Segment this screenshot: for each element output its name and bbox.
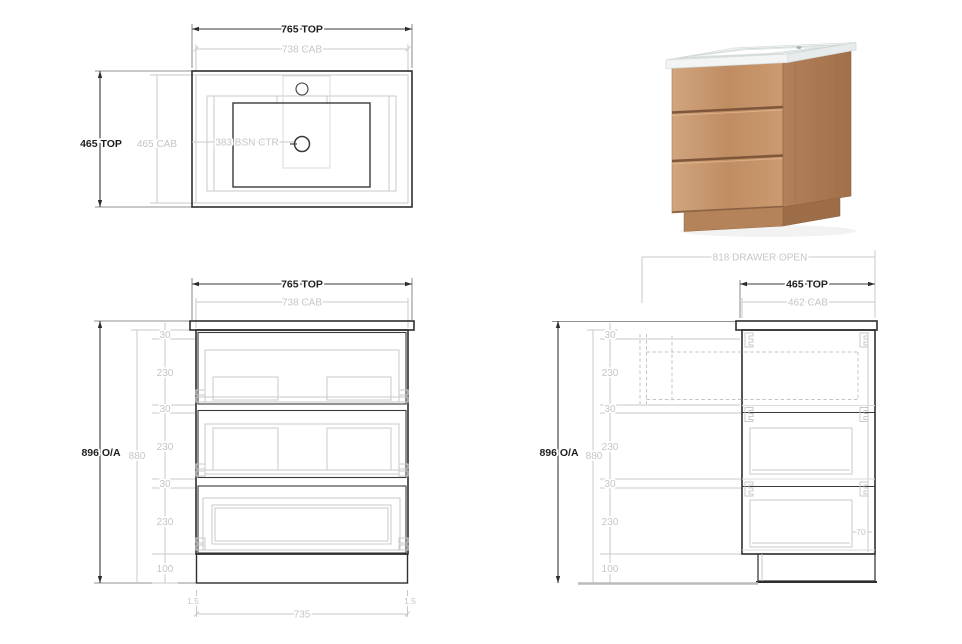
side-cabinet <box>742 330 875 554</box>
render-tap-hole <box>796 46 801 49</box>
side-view: 818 DRAWER OPEN 465 TOP 462 CAB 896 O/A … <box>528 243 892 603</box>
side-height-dims: 896 O/A 880 <box>539 321 736 583</box>
side-seg-0: 30 <box>604 330 616 341</box>
side-cab-height-label: 880 <box>586 451 603 462</box>
kick-width-label: 735 <box>294 610 311 621</box>
side-dim-chain: 30 230 30 230 30 230 100 <box>600 323 758 583</box>
front-seg-5: 230 <box>157 517 174 528</box>
front-dim-chain: 30 230 30 230 30 230 100 <box>152 323 196 583</box>
front-cab-height-label: 880 <box>129 451 146 462</box>
drawer-open-label: 818 DRAWER OPEN <box>713 253 808 264</box>
plan-width-dim-top: 765 TOP <box>192 24 412 36</box>
render-cabinet-side <box>783 45 851 207</box>
side-depth-cab-label: 462 CAB <box>788 298 828 309</box>
front-kick-dims: 1.5 1.5 735 <box>187 590 416 621</box>
side-seg-5: 230 <box>602 517 619 528</box>
front-seg-2: 30 <box>159 404 171 415</box>
plan-basin <box>233 83 370 187</box>
plan-depth-cab-label: 465 CAB <box>137 139 177 150</box>
plan-width-top-label: 765 TOP <box>281 24 323 36</box>
front-seg-4: 30 <box>159 479 171 490</box>
side-seg-6: 100 <box>602 564 619 575</box>
side-runner-clips <box>745 333 868 496</box>
side-seg-2: 30 <box>604 404 616 415</box>
kick-inset-left-label: 1.5 <box>187 596 199 606</box>
side-drawer-boxes <box>750 428 852 547</box>
plan-view: 765 TOP 738 CAB 465 TOP 465 CAB <box>70 14 430 226</box>
front-view: 765 TOP 738 CAB 896 O/A 880 <box>70 268 440 628</box>
front-drawer-internals <box>203 350 400 550</box>
plan-width-dim-cab: 738 CAB <box>194 45 411 56</box>
plan-width-cab-label: 738 CAB <box>282 45 322 56</box>
side-seg-1: 230 <box>602 368 619 379</box>
side-kick <box>756 554 877 582</box>
front-height-dims: 896 O/A 880 <box>81 321 196 583</box>
technical-drawing-sheet: 765 TOP 738 CAB 465 TOP 465 CAB <box>0 0 962 644</box>
front-seg-6: 100 <box>157 564 174 575</box>
side-depth-top-label: 465 TOP <box>786 279 828 291</box>
side-depth-dims: 465 TOP 462 CAB <box>740 279 875 319</box>
product-render <box>650 22 865 237</box>
front-width-top-label: 765 TOP <box>281 279 323 291</box>
kick-inset-right-label: 1.5 <box>404 596 416 606</box>
plan-depth-dim-cab: 465 CAB <box>137 75 177 203</box>
front-overall-label: 896 O/A <box>81 447 121 459</box>
front-cabinet <box>196 330 408 554</box>
front-width-cab-label: 738 CAB <box>282 298 322 309</box>
side-benchtop <box>736 321 877 330</box>
drawer-back-gap-label: 70 <box>856 527 866 537</box>
side-seg-3: 230 <box>602 442 619 453</box>
front-seg-0: 30 <box>159 330 171 341</box>
basin-centre-label: 383 BSN CTR <box>215 138 278 149</box>
side-seg-4: 30 <box>604 479 616 490</box>
tap-hole <box>296 83 308 95</box>
plan-extension-lines <box>95 24 412 207</box>
plan-depth-dim-top: 465 TOP <box>80 71 122 207</box>
render-cabinet-front <box>672 57 783 214</box>
front-seg-3: 230 <box>157 442 174 453</box>
plan-depth-top-label: 465 TOP <box>80 138 122 150</box>
front-seg-1: 230 <box>157 368 174 379</box>
front-kick <box>197 554 408 583</box>
side-drawer-back-gap-dim: 70 <box>852 527 872 537</box>
side-overall-label: 896 O/A <box>539 447 579 459</box>
front-benchtop <box>190 321 414 330</box>
